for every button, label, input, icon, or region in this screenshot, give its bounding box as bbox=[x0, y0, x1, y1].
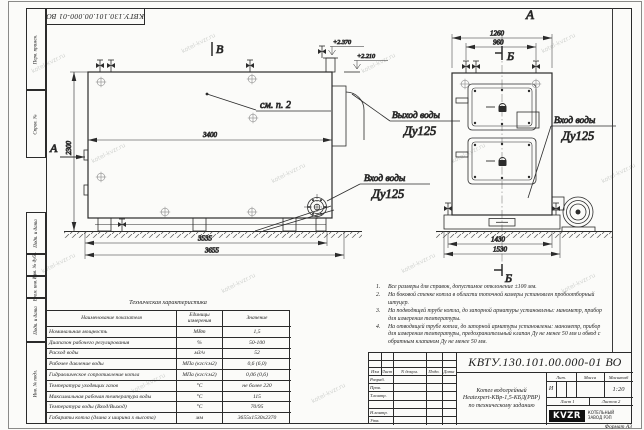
role-prov: Пров. bbox=[370, 383, 393, 391]
table-row: Максимальная рабочая температура воды°С1… bbox=[47, 391, 291, 402]
col-header-units: Единицы измерения bbox=[177, 311, 223, 326]
role-empty bbox=[370, 400, 393, 408]
margin-cell-vzam-inv: Взам. инв. № bbox=[26, 276, 46, 298]
top-doc-number: КВТУ.130.101.00.000-01 ВО bbox=[46, 12, 144, 21]
kvzr-logo: KVZR bbox=[549, 410, 585, 422]
col-izm: Изм bbox=[369, 367, 381, 375]
row-name: Температура уходящих газов bbox=[47, 381, 177, 391]
role-razrab: Разраб. bbox=[370, 375, 393, 383]
row-name: Рабочее давление воды bbox=[47, 359, 177, 369]
title-name-cell: Котел водогрейный Heatexpert-КВр-1,5-КБД… bbox=[456, 373, 546, 425]
row-value: 0,06 (0,6) bbox=[223, 370, 291, 380]
note-item: 1.Все размеры для справок, допустимое от… bbox=[376, 284, 608, 291]
margin-label: Перв. примен. bbox=[34, 34, 39, 64]
col-list: Лист bbox=[381, 367, 393, 375]
note-number: 2. bbox=[376, 292, 388, 307]
note-number: 1. bbox=[376, 284, 388, 291]
row-value: 0,6 (6,0) bbox=[223, 359, 291, 369]
row-name: Гидравлическое сопротивление котла bbox=[47, 370, 177, 380]
table-row: Температура уходящих газов°Сне более 220 bbox=[47, 380, 291, 391]
row-units: МВт bbox=[177, 327, 223, 337]
margin-label: Взам. инв. № bbox=[34, 273, 39, 301]
row-value: 52 bbox=[223, 349, 291, 359]
note-item: 3.На подводящей трубе котла, до запорной… bbox=[376, 308, 608, 323]
note-text: На подводящей трубе котла, до запорной а… bbox=[388, 308, 608, 323]
col-data: Дата bbox=[442, 367, 456, 375]
table-row: Габариты котла (длина х ширина х высота)… bbox=[47, 412, 291, 423]
scale-value: 1:20 bbox=[604, 381, 633, 397]
row-units: мм bbox=[177, 413, 223, 423]
sheet-number: Лист 1 bbox=[546, 397, 589, 405]
tech-table-title: Техническая характеристика bbox=[46, 299, 290, 306]
table-row: Температура воды (Вход/Выход)°С70/95 bbox=[47, 401, 291, 412]
row-units: °С bbox=[177, 402, 223, 412]
margin-label: Справ. № bbox=[34, 114, 39, 134]
table-row: Расход водым3/ч52 bbox=[47, 348, 291, 359]
role-nkontr: Н.контр. bbox=[370, 408, 393, 416]
frame-divider-line bbox=[612, 8, 613, 352]
margin-cell-perv-primen: Перв. примен. bbox=[26, 8, 46, 90]
row-name: Максимальная рабочая температура воды bbox=[47, 392, 177, 402]
row-units: МПа (кгс/см2) bbox=[177, 359, 223, 369]
col-podp: Подп. bbox=[426, 367, 442, 375]
table-row: Гидравлическое сопротивление котлаМПа (к… bbox=[47, 369, 291, 380]
margin-label: Подп. и дата bbox=[34, 306, 39, 335]
margin-cell-podp-data-2: Подп. и дата bbox=[26, 298, 46, 342]
note-item: 4.На отводящей трубе котла, до запорной … bbox=[376, 324, 608, 346]
row-name: Диапазон рабочего регулирования bbox=[47, 338, 177, 348]
row-name: Габариты котла (длина х ширина х высота) bbox=[47, 413, 177, 423]
table-row: Номинальная мощностьМВт1,5 bbox=[47, 326, 291, 337]
row-units: м3/ч bbox=[177, 349, 223, 359]
logo-sub2: ЗАВОД РЭП bbox=[588, 416, 614, 421]
row-name: Расход воды bbox=[47, 349, 177, 359]
format-label: Формат А3 bbox=[540, 424, 632, 430]
title-block: Изм Лист N докум. Подп. Дата Разраб. Про… bbox=[368, 352, 632, 424]
row-value: 50-100 bbox=[223, 338, 291, 348]
note-text: Все размеры для справок, допустимое откл… bbox=[388, 284, 537, 291]
note-item: 2.На боковой стенке котла в области топо… bbox=[376, 292, 608, 307]
margin-label: Инв. № подл. bbox=[34, 369, 39, 397]
col-header-name: Наименование показателя bbox=[47, 311, 177, 326]
row-value: 115 bbox=[223, 392, 291, 402]
margin-cell-sprav: Справ. № bbox=[26, 90, 46, 158]
notes-list: 1.Все размеры для справок, допустимое от… bbox=[376, 284, 608, 347]
col-header-value: Значение bbox=[223, 311, 291, 326]
note-text: На отводящей трубе котла, до запорной ар… bbox=[388, 324, 608, 346]
margin-label: Подп. и дата bbox=[34, 219, 39, 248]
product-name-line3: по техническому заданию bbox=[468, 403, 534, 411]
product-name-line2: Heatexpert-КВр-1,5-КБД(РВР) bbox=[463, 395, 540, 403]
lit-header: Лит. bbox=[546, 373, 576, 381]
tech-table-header: Наименование показателя Единицы измерени… bbox=[47, 311, 291, 326]
note-number: 4. bbox=[376, 324, 388, 346]
margin-cell-podp-data-1: Подп. и дата bbox=[26, 212, 46, 254]
role-utv: Утв. bbox=[370, 416, 393, 424]
row-units: МПа (кгс/см2) bbox=[177, 370, 223, 380]
margin-cell-inv-podl: Инв. № подл. bbox=[26, 342, 46, 424]
row-units: % bbox=[177, 338, 223, 348]
row-units: °С bbox=[177, 381, 223, 391]
row-name: Температура воды (Вход/Выход) bbox=[47, 402, 177, 412]
sheets-total: Листов 2 bbox=[589, 397, 633, 405]
top-doc-number-box: КВТУ.130.101.00.000-01 ВО bbox=[46, 8, 145, 25]
row-units: °С bbox=[177, 392, 223, 402]
table-row: Рабочее давление водыМПа (кгс/см2)0,6 (6… bbox=[47, 358, 291, 369]
tech-table: Наименование показателя Единицы измерени… bbox=[46, 310, 290, 424]
note-number: 3. bbox=[376, 308, 388, 323]
row-value: не более 220 bbox=[223, 381, 291, 391]
title-doc-number: КВТУ.130.101.00.000-01 ВО bbox=[456, 353, 633, 373]
scale-header: Масштаб bbox=[604, 373, 633, 381]
col-ndoc: N докум. bbox=[393, 367, 426, 375]
row-name: Номинальная мощность bbox=[47, 327, 177, 337]
mass-header: Масса bbox=[576, 373, 604, 381]
row-value: 3655х1530х2370 bbox=[223, 413, 291, 423]
role-tkontr: Т.контр. bbox=[370, 391, 393, 400]
table-row: Диапазон рабочего регулирования%50-100 bbox=[47, 337, 291, 348]
row-value: 70/95 bbox=[223, 402, 291, 412]
logo-area: KVZR КОТЕЛЬНЫЙ ЗАВОД РЭП bbox=[549, 408, 631, 423]
lit-value: И bbox=[546, 381, 556, 397]
note-text: На боковой стенке котла в области топочн… bbox=[388, 292, 608, 307]
row-value: 1,5 bbox=[223, 327, 291, 337]
